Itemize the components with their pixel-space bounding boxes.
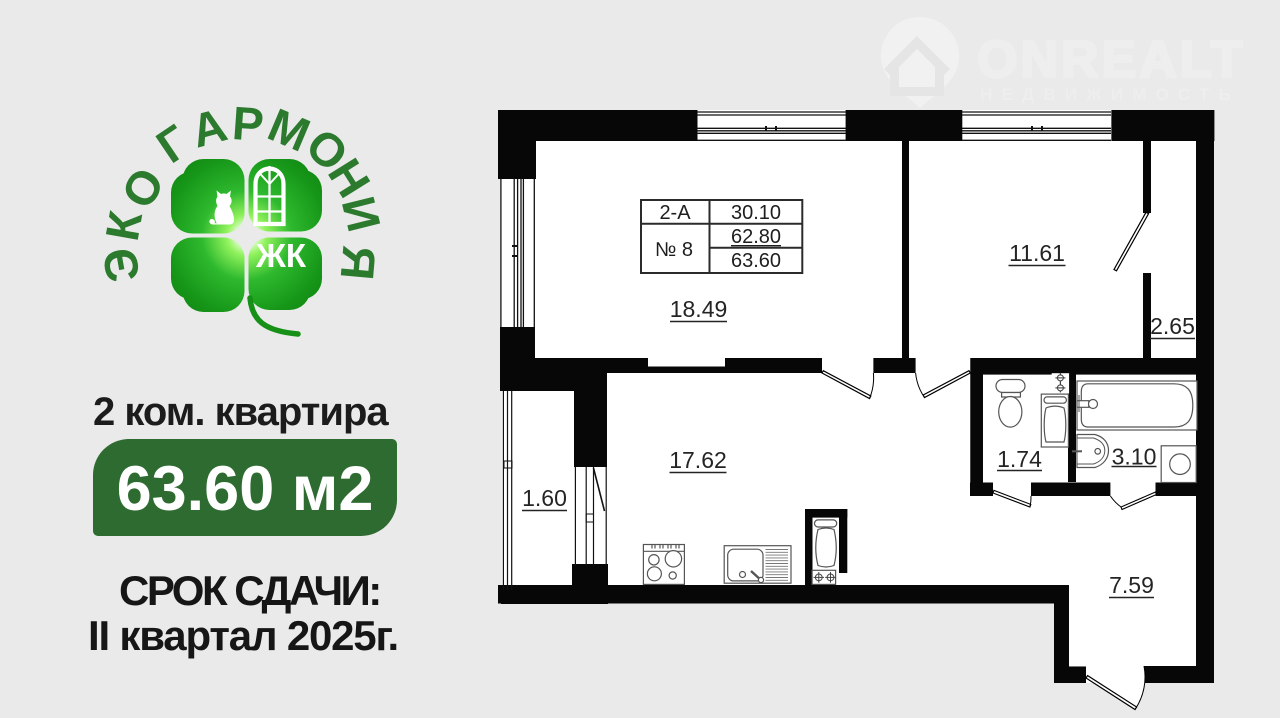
svg-text:3.10: 3.10 [1112,444,1157,470]
svg-text:2-А: 2-А [659,202,691,224]
svg-text:30.10: 30.10 [731,202,781,224]
svg-text:№ 8: № 8 [655,239,693,261]
svg-text:1.74: 1.74 [997,446,1042,472]
svg-text:1.60: 1.60 [522,485,567,511]
svg-text:7.59: 7.59 [1109,572,1154,598]
svg-text:17.62: 17.62 [669,447,727,473]
svg-text:2.65: 2.65 [1150,313,1195,339]
svg-text:62.80: 62.80 [731,226,781,248]
svg-text:18.49: 18.49 [670,296,728,322]
svg-text:63.60: 63.60 [731,250,781,272]
svg-text:11.61: 11.61 [1009,240,1065,266]
